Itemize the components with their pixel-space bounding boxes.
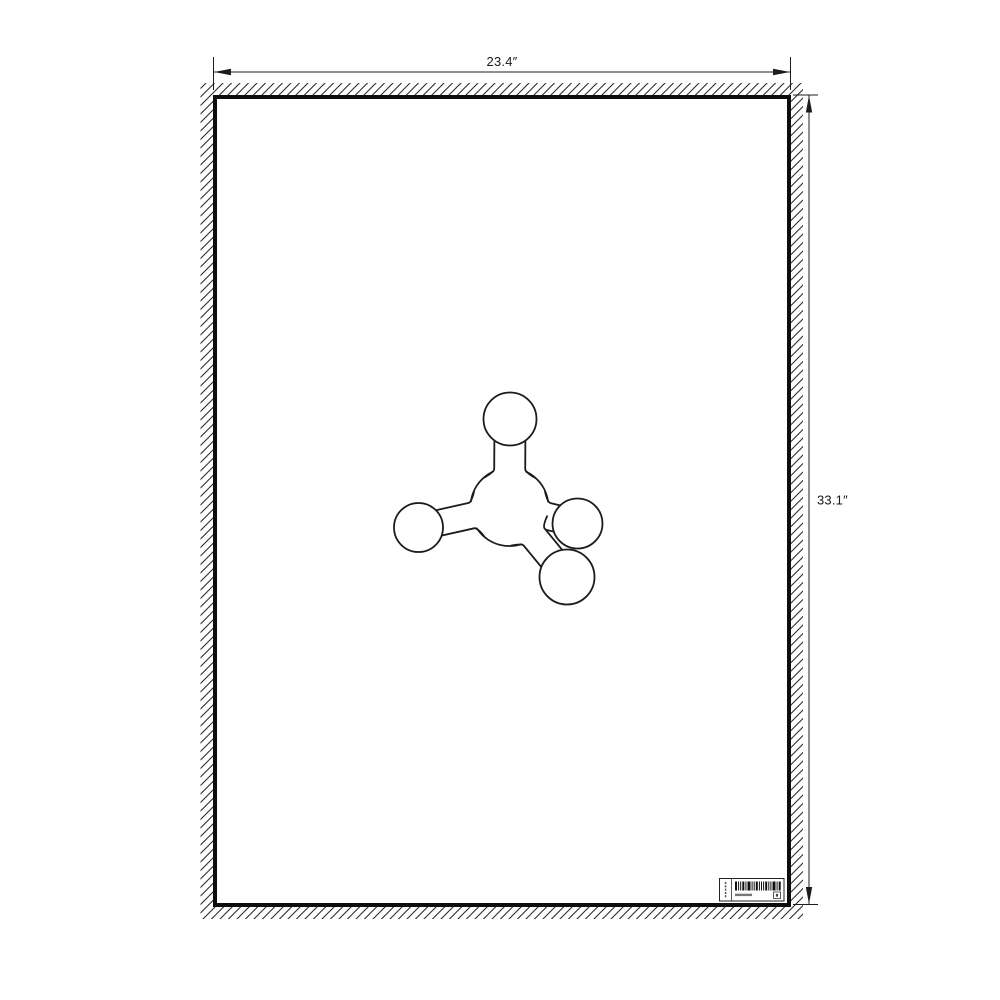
barcode-icon	[748, 882, 751, 891]
label-vertical-microtext	[725, 895, 727, 897]
barcode-icon	[754, 882, 755, 891]
barcode-icon	[777, 882, 778, 891]
barcode-icon	[763, 882, 764, 891]
barcode-icon	[756, 882, 758, 891]
poster-dimension-drawing: 23.4″ 33.1″	[0, 0, 1000, 1000]
arrow-down-icon	[806, 887, 812, 904]
label-vertical-microtext	[725, 892, 727, 894]
width-dimension-value: 23.4″	[487, 54, 518, 69]
barcode-icon	[745, 882, 746, 891]
barcode-icon	[761, 882, 762, 891]
label-small-box-glyph	[776, 894, 778, 897]
technical-drawing-canvas: 23.4″ 33.1″	[0, 0, 1000, 1000]
barcode-icon	[752, 882, 753, 891]
label-vertical-microtext	[725, 882, 727, 884]
label-vertical-microtext	[725, 885, 727, 887]
barcode-icon	[740, 882, 741, 891]
barcode-icon	[770, 882, 771, 891]
arrow-left-icon	[214, 69, 231, 75]
height-dimension-value: 33.1″	[817, 492, 848, 507]
label-code-microtext	[735, 894, 752, 896]
barcode-icon	[738, 882, 739, 891]
barcode-icon	[773, 882, 776, 891]
barcode-icon	[735, 882, 737, 891]
label-vertical-microtext	[725, 889, 727, 891]
molecule-sphere-top	[484, 393, 537, 446]
barcode-icon	[768, 882, 769, 891]
molecule-sphere-left	[394, 503, 443, 552]
barcode-icon	[779, 882, 781, 891]
arrow-right-icon	[773, 69, 790, 75]
barcode-icon	[765, 882, 767, 891]
barcode-icon	[759, 882, 760, 891]
molecule-sphere-right	[553, 499, 603, 549]
product-barcode-label	[720, 879, 785, 902]
molecule-sphere-bottom	[540, 550, 595, 605]
arrow-up-icon	[806, 96, 812, 113]
barcode-icon	[742, 882, 744, 891]
